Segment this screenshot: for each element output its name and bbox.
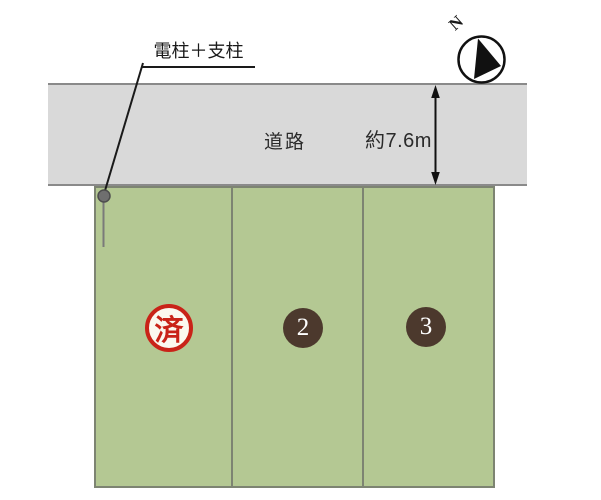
sold-stamp: 済 xyxy=(145,304,193,352)
road-label: 道路 xyxy=(264,127,306,154)
lot-layout-diagram: 電柱＋支柱 道路 約7.6m N 済 2 3 xyxy=(0,0,601,500)
north-letter: N xyxy=(441,8,472,39)
compass-needle-icon xyxy=(474,39,501,80)
lot-number-badge-3: 3 xyxy=(406,307,446,347)
north-compass-icon xyxy=(459,37,505,83)
lot-number-badge-2: 2 xyxy=(283,308,323,348)
pole-label: 電柱＋支柱 xyxy=(142,37,255,68)
road-width-label: 約7.6m xyxy=(365,124,432,153)
